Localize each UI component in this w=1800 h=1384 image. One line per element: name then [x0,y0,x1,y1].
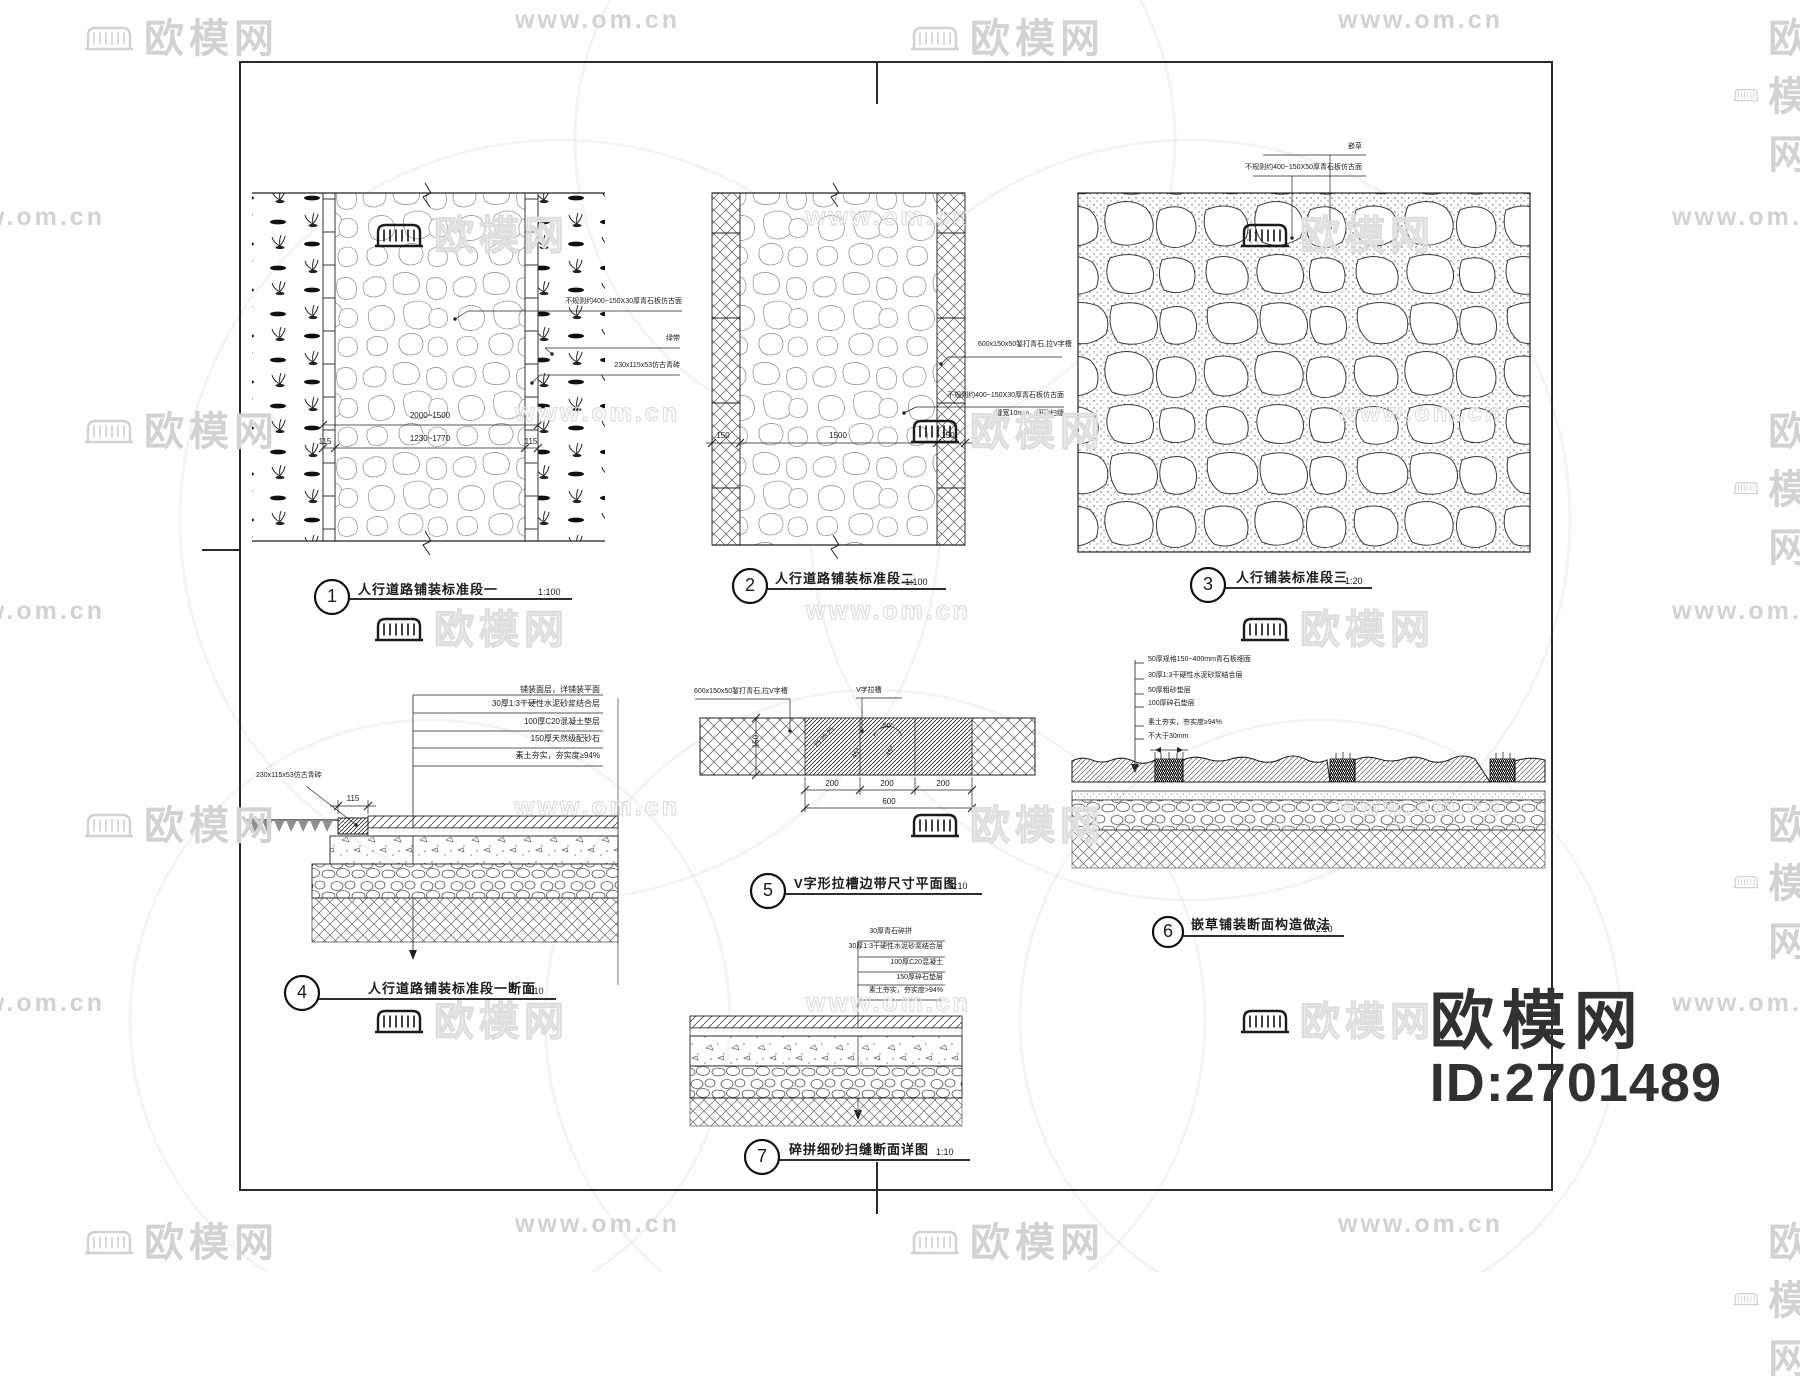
d4-layer-2: 100厚C20混凝土垫层 [413,717,600,726]
d2-annotation-stone-1: 不规则约400~150X30厚青石板仿古面 [940,392,1064,400]
d6-layer-3: 50厚粗砂垫层 [1148,687,1191,695]
d6-layer-2: 30厚1:3干硬性水泥砂浆结合层 [1148,672,1243,680]
d4-title-scale: 1:10 [526,986,544,996]
d5-dim-200-3: 200 [921,779,965,788]
d5-dim-height: 150 [751,727,760,757]
d6-layer-1: 50厚规格150~400mm青石板细面 [1148,656,1251,664]
d7-layer-2: 100厚C20混凝土 [812,959,943,967]
d4-layer-3: 150厚天然级配砂石 [413,734,600,743]
d2-title-number: 2 [733,575,767,596]
d3-annotation-grass: 嵌草 [1302,143,1362,151]
d6-layer-5: 素土夯实，夯实度≥94% [1148,719,1222,727]
d3-title: 人行铺装标准段三 [1236,571,1348,586]
d6-layer-4: 100厚碎石垫层 [1148,700,1195,708]
d1-dim-inner: 1230~1770 [380,434,480,443]
d3-annotation-stone: 不规则约400~150X50厚青石板仿古面 [1240,164,1362,172]
d5-title-scale: 1:10 [950,881,968,891]
d2-dim-mid: 1500 [800,431,876,440]
d6-title-number: 6 [1151,921,1185,942]
d5-angle-top: 50° [874,723,902,731]
d4-layer-header: 铺装面层，详铺装平面 [413,685,600,694]
d5-title: V字形拉槽边带尺寸平面图 [794,877,958,892]
d2-dim-right: 150 [930,431,966,440]
d5-groove-dims: 25 25 25 [813,726,836,749]
d7-title-number: 7 [745,1146,779,1167]
d1-dim-edge-right: 115 [520,437,542,446]
d5-annotation-right: V字拉槽 [856,687,882,695]
d3-title-number: 3 [1191,574,1225,595]
d1-title: 人行道路铺装标准段一 [358,583,498,598]
d4-brick-note: 230x115x53仿古青砖 [256,772,322,780]
d2-annotation-edge-stone: 600x150x50錾打青石,拉V字槽 [978,341,1072,349]
d7-layer-4: 素土夯实，夯实度>94% [812,987,943,995]
d5-dim-200-1: 200 [810,779,854,788]
d7-layer-1: 30厚1:3干硬性水泥砂浆结合层 [812,943,943,951]
site-id-text: ID:2701489 [1430,1055,1722,1112]
d2-title: 人行道路铺装标准段二 [775,572,915,587]
d7-title-scale: 1:10 [936,1147,954,1157]
d1-annotation-greenbelt: 绿带 [600,335,680,343]
d5-dim-600: 600 [864,797,914,806]
d6-gap-note: 不大于30mm [1148,733,1188,741]
d4-title-number: 4 [285,982,319,1003]
d4-brick-dim: 115 [340,794,366,803]
cad-sheet: 不规则约400~150X30厚青石板仿古面 绿带 230x115x53仿古青砖 … [0,0,1800,1272]
d4-layer-1: 30厚1:3干硬性水泥砂浆结合层 [413,699,600,708]
d4-title: 人行道路铺装标准段一断面 [368,982,536,997]
site-brand-text: 欧模网 [1430,988,1722,1055]
d3-title-scale: 1:20 [1345,576,1363,586]
d1-title-scale: 1:100 [538,587,561,597]
d5-angle-left: 45° [851,747,864,760]
d6-title: 嵌草铺装断面构造做法 [1191,918,1331,933]
d1-title-number: 1 [315,586,349,607]
d2-dim-left: 150 [705,431,741,440]
d1-annotation-brick: 230x115x53仿古青砖 [558,362,680,370]
d2-title-scale: 1:100 [905,577,928,587]
d2-annotation-stone-2: 缝宽10mm，细砂扫缝 [960,410,1064,418]
d7-title: 碎拼细砂扫缝断面详图 [789,1143,929,1158]
d1-dim-edge-left: 115 [314,437,336,446]
d6-title-scale: 1:10 [1315,924,1333,934]
d5-dim-200-2: 200 [865,779,909,788]
d7-layer-header: 30厚青石碎拼 [822,928,912,936]
d1-dim-outer: 2000~1500 [380,411,480,420]
d4-layer-4: 素土夯实，夯实度≥94% [413,751,600,760]
site-id-watermark: 欧模网 ID:2701489 [1430,988,1722,1112]
d5-title-number: 5 [751,880,785,901]
d7-layer-3: 150厚碎石垫层 [812,974,943,982]
d5-annotation-left: 600x150x50錾打青石,拉V字槽 [694,688,788,696]
d5-angle-right: 45° [885,745,898,758]
d1-annotation-stone: 不规则约400~150X30厚青石板仿古面 [538,298,682,306]
